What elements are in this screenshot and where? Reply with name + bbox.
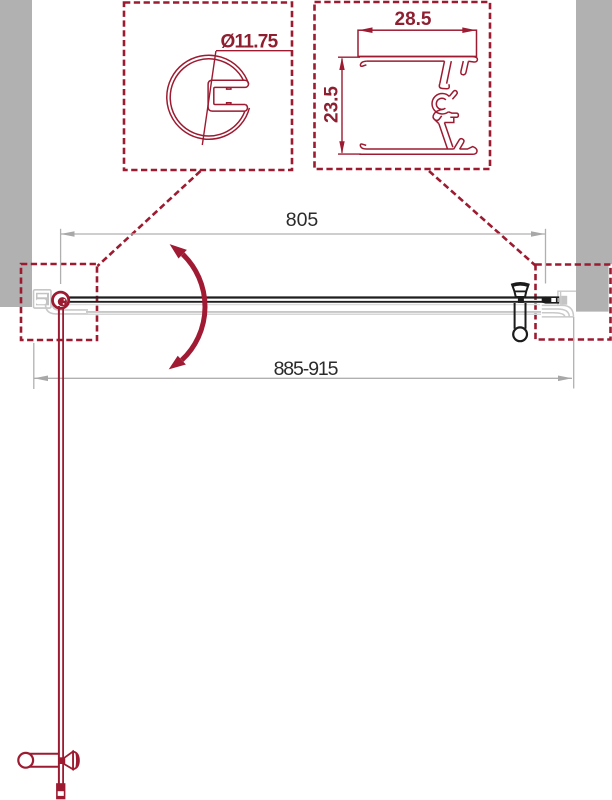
- svg-text:885-915: 885-915: [274, 358, 339, 380]
- svg-text:23.5: 23.5: [322, 86, 343, 123]
- svg-text:805: 805: [286, 209, 319, 231]
- svg-text:28.5: 28.5: [395, 9, 432, 30]
- svg-text:Ø11.75: Ø11.75: [220, 32, 278, 53]
